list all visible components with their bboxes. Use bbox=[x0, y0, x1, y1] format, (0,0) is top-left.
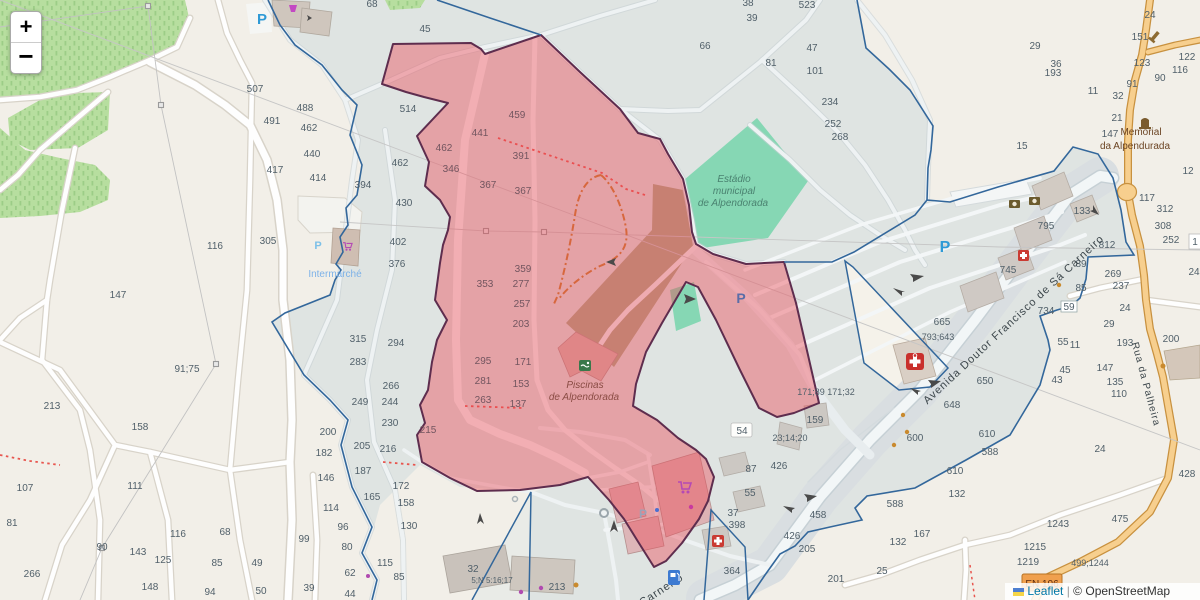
svg-text:475: 475 bbox=[1112, 514, 1129, 525]
svg-text:39: 39 bbox=[746, 13, 758, 24]
svg-text:132: 132 bbox=[949, 489, 966, 500]
svg-text:da Alpendurada: da Alpendurada bbox=[1100, 141, 1171, 152]
svg-text:402: 402 bbox=[390, 237, 407, 248]
svg-text:367: 367 bbox=[480, 180, 497, 191]
svg-text:P: P bbox=[736, 290, 745, 306]
svg-text:417: 417 bbox=[267, 165, 284, 176]
svg-text:P: P bbox=[940, 239, 951, 256]
svg-text:514: 514 bbox=[400, 104, 417, 115]
svg-text:230: 230 bbox=[382, 418, 399, 429]
svg-text:39: 39 bbox=[303, 583, 315, 594]
svg-text:99: 99 bbox=[298, 534, 310, 545]
svg-text:23;14;20: 23;14;20 bbox=[772, 433, 807, 443]
svg-text:66: 66 bbox=[699, 41, 711, 52]
svg-text:116: 116 bbox=[1172, 65, 1188, 76]
svg-text:80: 80 bbox=[341, 542, 353, 553]
svg-text:610: 610 bbox=[947, 466, 964, 477]
svg-text:24: 24 bbox=[1094, 444, 1106, 455]
svg-text:116: 116 bbox=[207, 241, 223, 252]
svg-text:49: 49 bbox=[251, 558, 263, 569]
svg-text:94: 94 bbox=[204, 587, 216, 598]
svg-text:394: 394 bbox=[355, 180, 372, 191]
svg-text:359: 359 bbox=[515, 264, 532, 275]
svg-text:146: 146 bbox=[318, 473, 335, 484]
svg-text:114: 114 bbox=[323, 503, 339, 514]
svg-text:193: 193 bbox=[1045, 68, 1062, 79]
svg-text:305: 305 bbox=[260, 236, 277, 247]
svg-text:172: 172 bbox=[393, 481, 410, 492]
svg-text:29: 29 bbox=[1029, 41, 1041, 52]
svg-text:47: 47 bbox=[806, 43, 818, 54]
svg-text:650: 650 bbox=[977, 376, 994, 387]
svg-text:50: 50 bbox=[255, 586, 267, 597]
svg-text:147: 147 bbox=[1102, 129, 1119, 140]
svg-text:263: 263 bbox=[475, 395, 492, 406]
svg-text:459: 459 bbox=[509, 110, 526, 121]
svg-text:488: 488 bbox=[297, 103, 314, 114]
svg-text:159: 159 bbox=[807, 415, 824, 426]
svg-text:151: 151 bbox=[1132, 32, 1149, 43]
svg-text:25: 25 bbox=[876, 566, 888, 577]
svg-text:745: 745 bbox=[1000, 265, 1017, 276]
svg-text:101: 101 bbox=[807, 66, 824, 77]
svg-text:414: 414 bbox=[310, 173, 327, 184]
svg-text:430: 430 bbox=[396, 198, 413, 209]
svg-text:147: 147 bbox=[110, 290, 127, 301]
svg-text:507: 507 bbox=[247, 84, 264, 95]
svg-text:203: 203 bbox=[513, 319, 530, 330]
svg-text:44: 44 bbox=[344, 589, 356, 600]
svg-text:462: 462 bbox=[392, 158, 409, 169]
svg-text:523: 523 bbox=[799, 0, 816, 11]
svg-text:215: 215 bbox=[420, 425, 437, 436]
svg-text:1: 1 bbox=[1192, 237, 1198, 248]
svg-text:200: 200 bbox=[320, 427, 337, 438]
svg-text:426: 426 bbox=[771, 461, 788, 472]
svg-text:237: 237 bbox=[1113, 281, 1130, 292]
svg-text:268: 268 bbox=[832, 132, 849, 143]
svg-text:295: 295 bbox=[475, 356, 492, 367]
svg-text:266: 266 bbox=[24, 569, 41, 580]
svg-text:de Alpendorada: de Alpendorada bbox=[549, 392, 620, 403]
svg-text:171: 171 bbox=[515, 357, 532, 368]
svg-text:398: 398 bbox=[729, 520, 746, 531]
svg-text:391: 391 bbox=[513, 151, 530, 162]
svg-text:426: 426 bbox=[784, 531, 801, 542]
svg-text:244: 244 bbox=[382, 397, 399, 408]
svg-text:32: 32 bbox=[1112, 91, 1124, 102]
svg-text:171;89 171;32: 171;89 171;32 bbox=[797, 387, 855, 397]
svg-text:32: 32 bbox=[467, 564, 479, 575]
svg-text:P: P bbox=[314, 240, 321, 252]
svg-text:148: 148 bbox=[142, 582, 159, 593]
svg-text:137: 137 bbox=[510, 399, 527, 410]
svg-text:588: 588 bbox=[887, 499, 904, 510]
svg-text:P: P bbox=[639, 507, 647, 521]
svg-text:462: 462 bbox=[436, 143, 453, 154]
svg-text:115: 115 bbox=[377, 558, 393, 569]
svg-text:665: 665 bbox=[934, 317, 951, 328]
svg-text:123: 123 bbox=[1134, 58, 1151, 69]
svg-text:205: 205 bbox=[354, 441, 371, 452]
svg-text:90: 90 bbox=[96, 542, 108, 553]
svg-text:85: 85 bbox=[1075, 283, 1087, 294]
svg-text:24: 24 bbox=[1144, 10, 1156, 21]
svg-text:Piscinas: Piscinas bbox=[566, 380, 603, 391]
svg-text:158: 158 bbox=[132, 422, 149, 433]
svg-text:458: 458 bbox=[810, 510, 827, 521]
svg-text:205: 205 bbox=[799, 544, 816, 555]
svg-text:234: 234 bbox=[822, 97, 839, 108]
svg-text:130: 130 bbox=[401, 521, 418, 532]
svg-text:24: 24 bbox=[1188, 267, 1200, 278]
svg-text:315: 315 bbox=[350, 334, 367, 345]
svg-text:266: 266 bbox=[383, 381, 400, 392]
svg-text:85: 85 bbox=[393, 572, 405, 583]
svg-text:294: 294 bbox=[388, 338, 405, 349]
svg-text:269: 269 bbox=[1105, 269, 1122, 280]
svg-text:117: 117 bbox=[1139, 193, 1155, 204]
svg-text:153: 153 bbox=[513, 379, 530, 390]
svg-text:428: 428 bbox=[1179, 469, 1196, 480]
svg-text:312: 312 bbox=[1157, 204, 1174, 215]
svg-text:38: 38 bbox=[742, 0, 754, 9]
svg-text:213: 213 bbox=[549, 582, 566, 593]
svg-text:376: 376 bbox=[389, 259, 406, 270]
svg-text:1219: 1219 bbox=[1017, 557, 1040, 568]
svg-text:600: 600 bbox=[907, 433, 924, 444]
svg-text:68: 68 bbox=[366, 0, 378, 10]
svg-text:111: 111 bbox=[127, 481, 143, 492]
svg-text:252: 252 bbox=[825, 119, 842, 130]
svg-text:588: 588 bbox=[982, 447, 999, 458]
svg-text:21: 21 bbox=[1111, 113, 1123, 124]
svg-text:81: 81 bbox=[6, 518, 18, 529]
svg-text:Estádio: Estádio bbox=[717, 174, 751, 185]
svg-text:187: 187 bbox=[355, 466, 372, 477]
svg-text:277: 277 bbox=[513, 279, 530, 290]
svg-text:de Alpendorada: de Alpendorada bbox=[698, 198, 769, 209]
svg-text:54: 54 bbox=[736, 426, 748, 437]
svg-text:90: 90 bbox=[1154, 73, 1166, 84]
svg-text:125: 125 bbox=[155, 555, 172, 566]
svg-text:257: 257 bbox=[514, 299, 531, 310]
svg-text:353: 353 bbox=[477, 279, 494, 290]
svg-text:610: 610 bbox=[979, 429, 996, 440]
svg-text:200: 200 bbox=[1163, 334, 1180, 345]
svg-text:122: 122 bbox=[1179, 52, 1196, 63]
svg-text:283: 283 bbox=[350, 357, 367, 368]
svg-text:55: 55 bbox=[1057, 337, 1069, 348]
svg-text:648: 648 bbox=[944, 400, 961, 411]
svg-text:45: 45 bbox=[419, 24, 431, 35]
svg-text:110: 110 bbox=[1111, 389, 1127, 400]
svg-text:87: 87 bbox=[745, 464, 757, 475]
svg-text:55: 55 bbox=[744, 488, 756, 499]
svg-text:12: 12 bbox=[1182, 166, 1194, 177]
svg-text:165: 165 bbox=[364, 492, 381, 503]
svg-text:143: 143 bbox=[130, 547, 147, 558]
svg-text:201: 201 bbox=[828, 574, 845, 585]
svg-text:24: 24 bbox=[1119, 303, 1131, 314]
svg-text:252: 252 bbox=[1163, 235, 1180, 246]
svg-text:734: 734 bbox=[1038, 306, 1055, 317]
svg-text:213: 213 bbox=[44, 401, 61, 412]
svg-text:91: 91 bbox=[1126, 79, 1138, 90]
svg-text:15: 15 bbox=[1016, 141, 1028, 152]
svg-text:364: 364 bbox=[724, 566, 741, 577]
svg-text:116: 116 bbox=[170, 529, 186, 540]
svg-text:68: 68 bbox=[219, 527, 231, 538]
svg-text:81: 81 bbox=[765, 58, 777, 69]
svg-text:441: 441 bbox=[472, 128, 489, 139]
svg-text:167: 167 bbox=[914, 529, 931, 540]
svg-text:107: 107 bbox=[17, 483, 34, 494]
svg-text:147: 147 bbox=[1097, 363, 1114, 374]
svg-text:182: 182 bbox=[316, 448, 333, 459]
svg-text:municipal: municipal bbox=[713, 186, 756, 197]
svg-text:96: 96 bbox=[337, 522, 349, 533]
svg-text:62: 62 bbox=[344, 568, 356, 579]
svg-text:346: 346 bbox=[443, 164, 460, 175]
svg-text:37: 37 bbox=[727, 508, 739, 519]
svg-text:11: 11 bbox=[1070, 340, 1081, 351]
svg-text:5;N 5:16;17: 5;N 5:16;17 bbox=[471, 576, 513, 585]
svg-text:308: 308 bbox=[1155, 221, 1172, 232]
svg-text:P: P bbox=[257, 11, 267, 28]
svg-text:216: 216 bbox=[380, 444, 397, 455]
svg-text:1215: 1215 bbox=[1024, 542, 1047, 553]
svg-text:43: 43 bbox=[1051, 375, 1063, 386]
svg-text:29: 29 bbox=[1103, 319, 1115, 330]
svg-text:249: 249 bbox=[352, 397, 369, 408]
svg-text:491: 491 bbox=[264, 116, 281, 127]
svg-text:91;75: 91;75 bbox=[174, 364, 199, 375]
svg-text:85: 85 bbox=[211, 558, 223, 569]
svg-text:462: 462 bbox=[301, 123, 318, 134]
svg-text:795: 795 bbox=[1038, 221, 1055, 232]
svg-text:793;643: 793;643 bbox=[922, 332, 955, 342]
svg-text:Intermarché: Intermarché bbox=[308, 269, 362, 280]
svg-text:135: 135 bbox=[1107, 377, 1124, 388]
svg-text:1243: 1243 bbox=[1047, 519, 1070, 530]
svg-text:132: 132 bbox=[890, 537, 907, 548]
svg-text:158: 158 bbox=[398, 498, 415, 509]
svg-text:367: 367 bbox=[515, 186, 532, 197]
svg-text:133: 133 bbox=[1074, 206, 1091, 217]
svg-text:499;1244: 499;1244 bbox=[1071, 558, 1109, 568]
svg-text:440: 440 bbox=[304, 149, 321, 160]
svg-text:59: 59 bbox=[1063, 302, 1075, 313]
svg-text:11: 11 bbox=[1088, 86, 1099, 97]
svg-text:281: 281 bbox=[475, 376, 492, 387]
